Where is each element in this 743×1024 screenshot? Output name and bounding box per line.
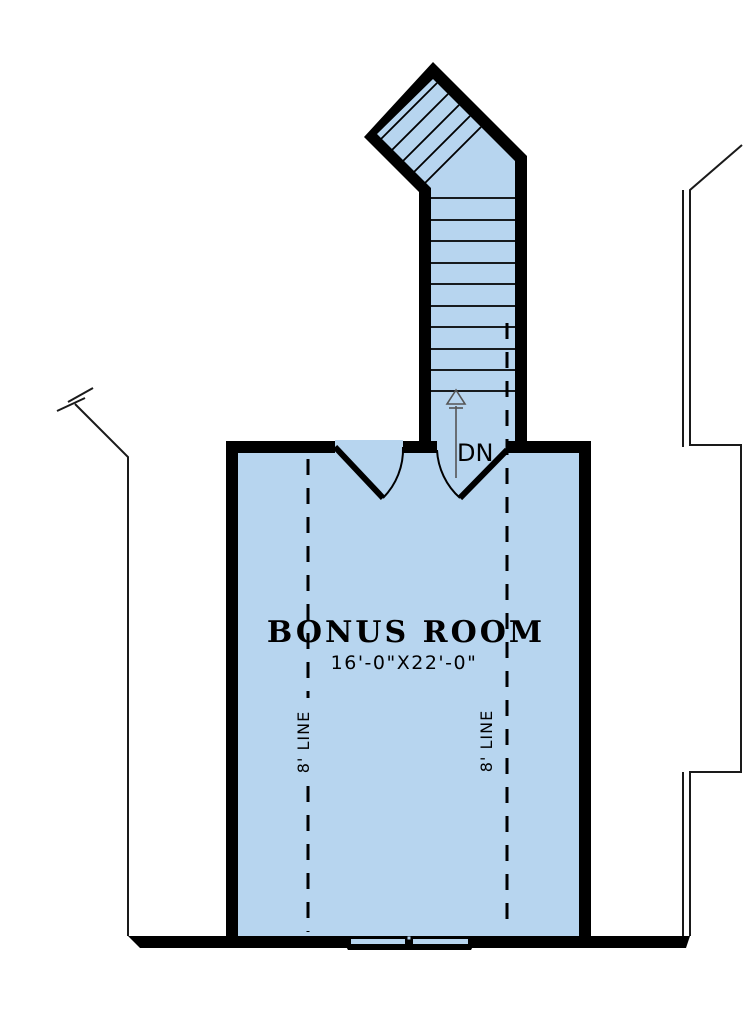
window-pane-left xyxy=(351,939,405,944)
door-opening-left xyxy=(335,440,403,455)
ceiling-line-right-label: 8' LINE xyxy=(477,710,496,772)
window-pane-right xyxy=(413,939,468,944)
window-mullion-notch xyxy=(408,937,411,940)
room-wall-right xyxy=(579,441,591,948)
ceiling-line-left-label: 8' LINE xyxy=(294,711,313,773)
room-label: BONUS ROOM xyxy=(267,615,545,650)
left-roofline xyxy=(57,388,128,936)
floor-areas xyxy=(230,62,587,944)
room-wall-top-center-segment xyxy=(403,441,437,453)
bonus-room-floor xyxy=(230,445,587,944)
window-bottom xyxy=(344,936,475,950)
floor-plan-svg: BONUS ROOM 16'-0"X22'-0" DN 8' LINE 8' L… xyxy=(0,0,743,1024)
room-dimensions: 16'-0"X22'-0" xyxy=(331,652,478,674)
dn-label: DN xyxy=(457,439,493,467)
floor-plan: BONUS ROOM 16'-0"X22'-0" DN 8' LINE 8' L… xyxy=(0,0,743,1024)
line-break-mark xyxy=(57,388,93,411)
room-wall-left xyxy=(226,441,238,948)
room-wall-top-right-segment xyxy=(507,441,591,453)
right-roofline xyxy=(683,145,742,936)
room-wall-top-left-segment xyxy=(226,441,335,453)
